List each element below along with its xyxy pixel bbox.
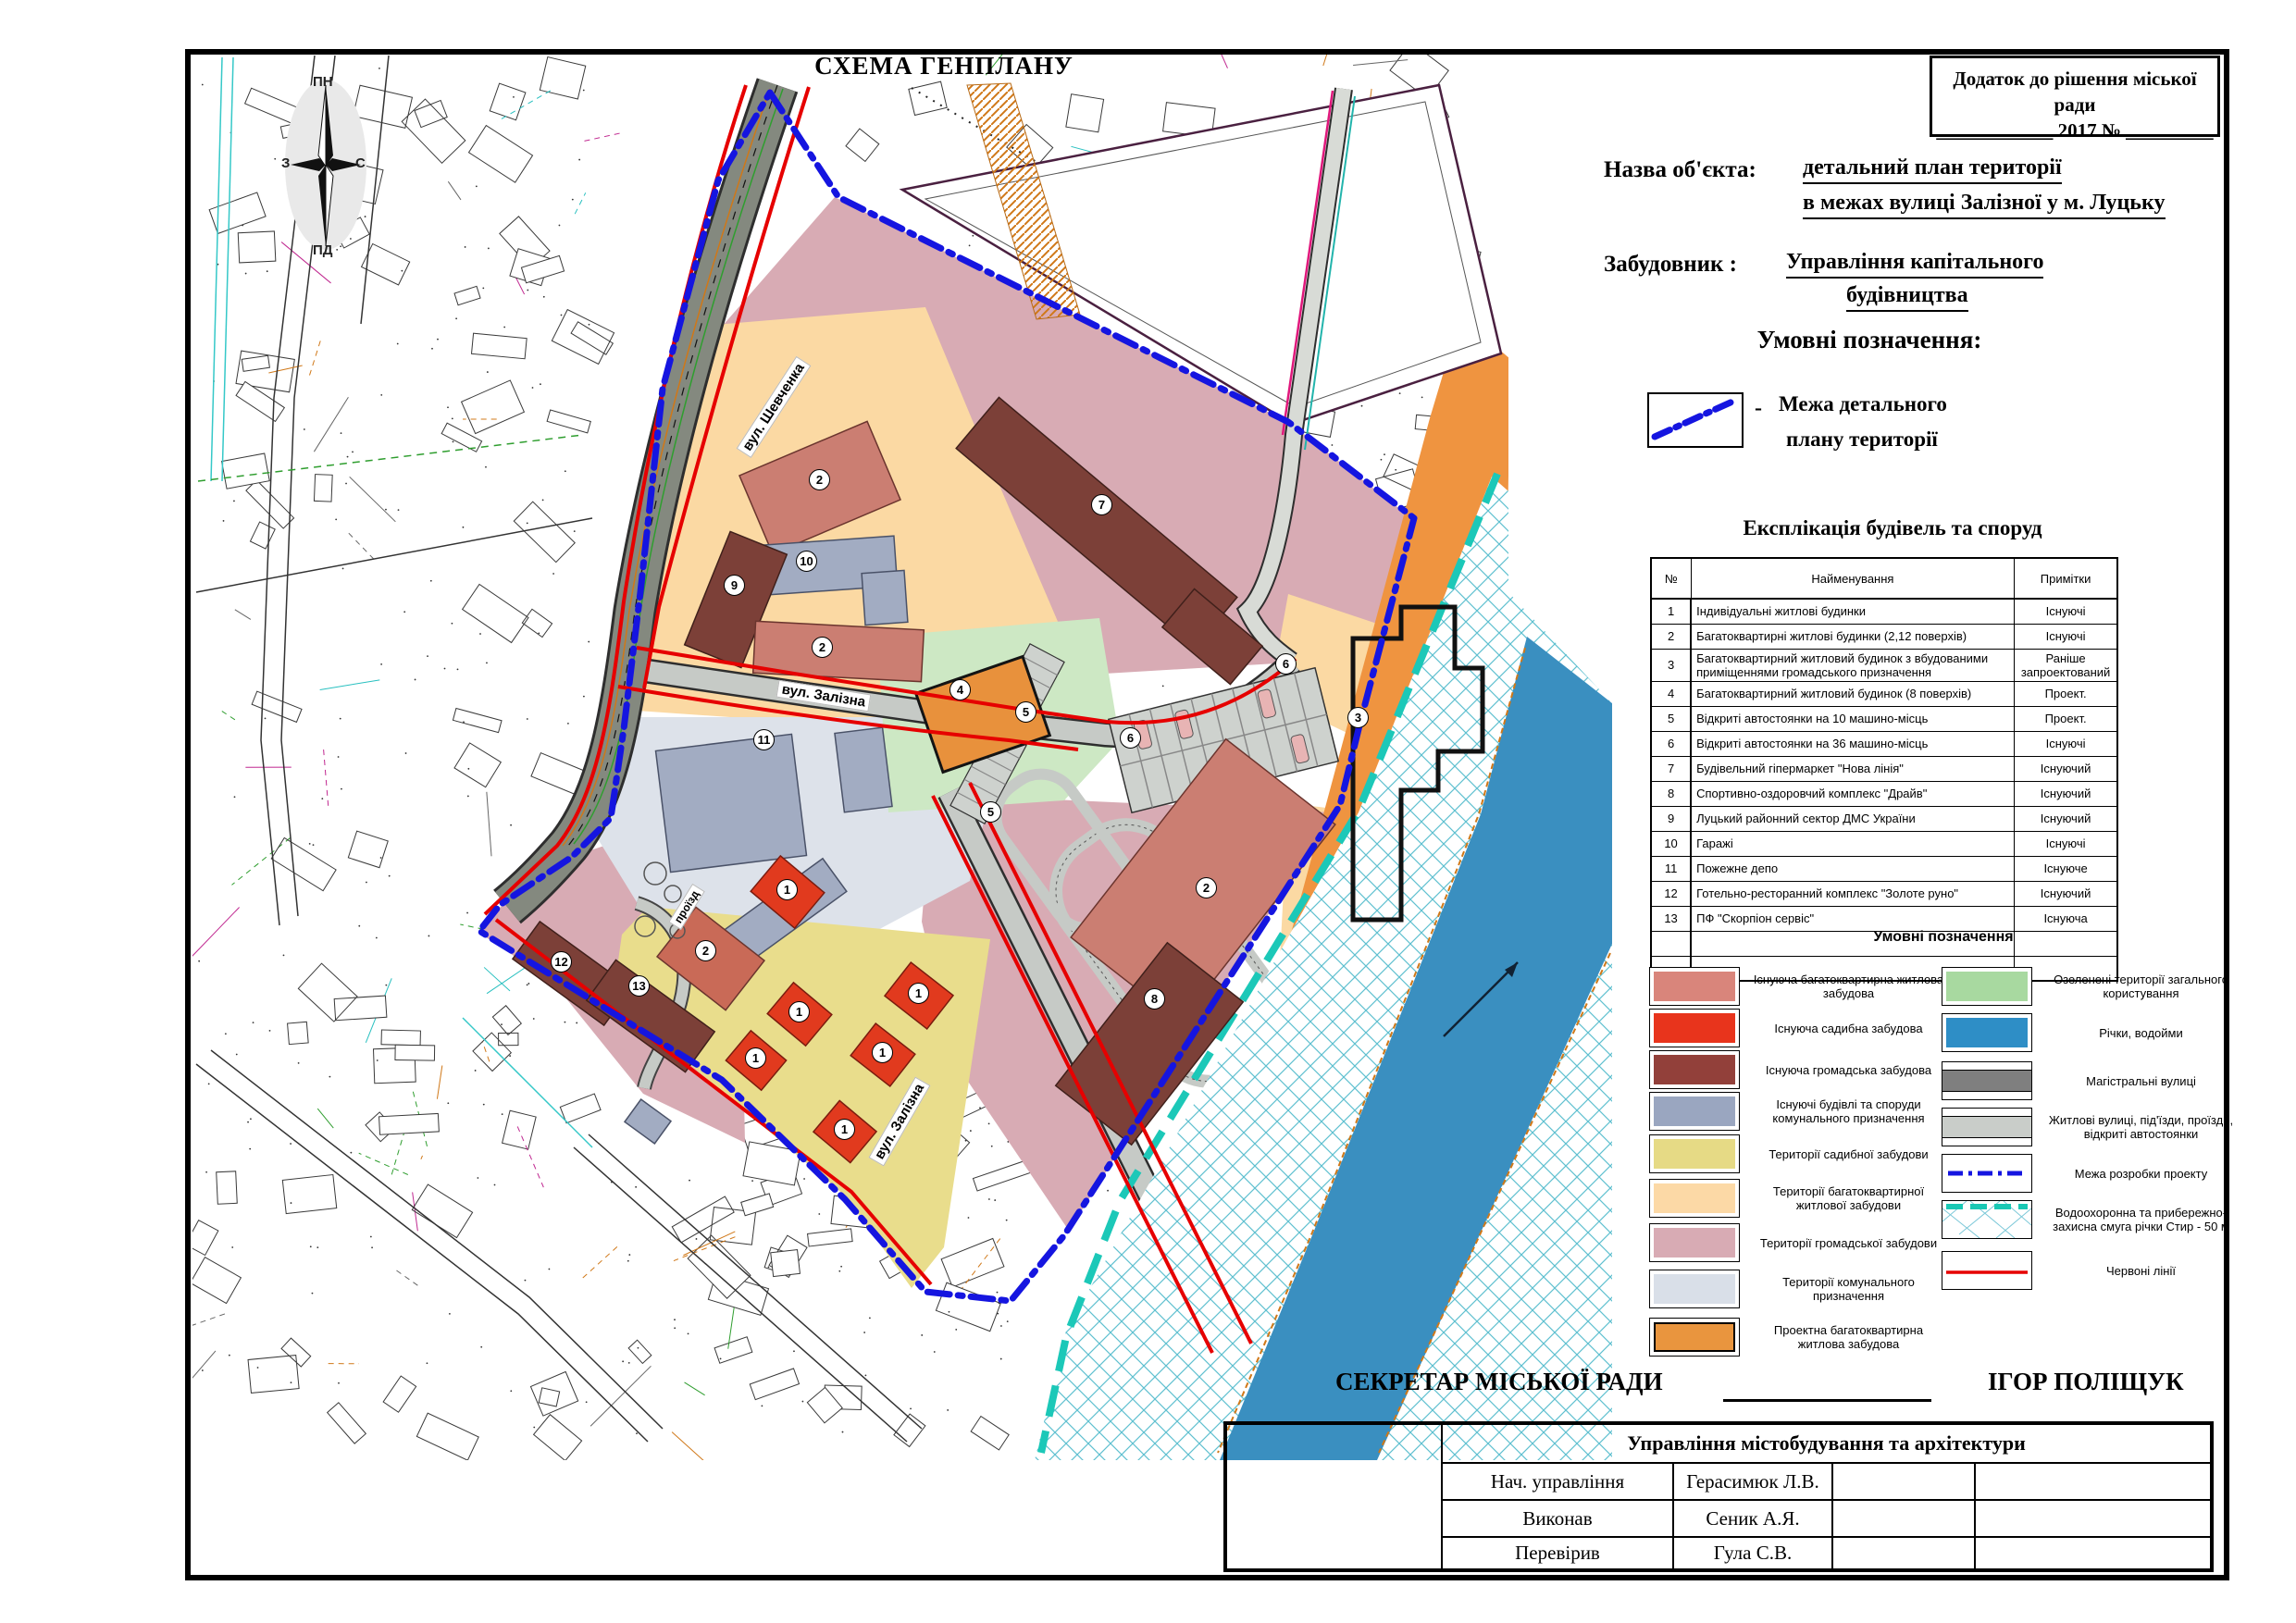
approval-signature-cell [1832, 1500, 1975, 1537]
map-marker-1: 1 [834, 1119, 855, 1140]
legend-swatch [1942, 1013, 2032, 1052]
map-marker-6: 6 [1275, 653, 1297, 675]
row-note: Існуючі [2015, 731, 2117, 756]
legend-item: Водоохоронна та прибережно-захисна смуга… [1942, 1200, 2240, 1239]
row-num: 1 [1651, 599, 1691, 624]
legend-item: Існуюча багатоквартирна житлова забудова [1649, 967, 1948, 1006]
legend-swatch [1942, 1251, 2032, 1290]
legend-item: Житлові вулиці, під'їзди, проїзди, відкр… [1942, 1108, 2240, 1146]
map-marker-5: 5 [1015, 701, 1036, 723]
compass-north-label: ПН [313, 74, 333, 90]
developer-line1: Управління капітального [1786, 250, 2043, 279]
explication-row: 5 Відкриті автостоянки на 10 машино-місц… [1651, 706, 2117, 731]
approval-role: Виконав [1442, 1500, 1673, 1537]
map-marker-2: 2 [695, 940, 716, 961]
legend-swatch [1649, 1179, 1740, 1218]
row-num: 2 [1651, 624, 1691, 649]
explication-row: 12 Готельно-ресторанний комплекс "Золоте… [1651, 881, 2117, 906]
legend-item: Річки, водойми [1942, 1013, 2240, 1052]
row-name: Спортивно-оздоровчий комплекс "Драйв" [1691, 781, 2015, 806]
legend-swatch [1649, 967, 1740, 1006]
legend-swatch [1649, 1318, 1740, 1357]
signature-blank [1723, 1368, 1931, 1402]
explication-row: 10 Гаражі Існуючі [1651, 831, 2117, 856]
compass-east-label: С [355, 155, 366, 171]
object-name-line2: в межах вулиці Залізної у м. Луцьку [1803, 191, 2166, 219]
row-note: Існуючий [2015, 881, 2117, 906]
row-name: Багатоквартирний житловий будинок з вбуд… [1691, 649, 2015, 681]
map-marker-7: 7 [1091, 494, 1112, 515]
map-marker-10: 10 [796, 551, 817, 572]
explication-row: 2 Багатоквартирні житлові будинки (2,12 … [1651, 624, 2117, 649]
legend-swatch [1649, 1270, 1740, 1308]
legend-item: Межа розробки проекту [1942, 1154, 2240, 1193]
explication-row: 7 Будівельний гіпермаркет "Нова лінія" І… [1651, 756, 2117, 781]
legend-swatch [1942, 1200, 2032, 1239]
row-num: 13 [1651, 906, 1691, 931]
legend-swatch [1649, 1134, 1740, 1173]
row-name: Багатоквартирний житловий будинок (8 пов… [1691, 681, 2015, 706]
legend-label: Червоні лінії [2042, 1264, 2240, 1278]
col-note-header: Примітки [2015, 558, 2117, 599]
row-name: Відкриті автостоянки на 36 машино-місць [1691, 731, 2015, 756]
legend-swatch [1649, 1092, 1740, 1131]
explication-title: Експлікація будівель та споруд [1694, 516, 2091, 540]
legend-item: Існуюча садибна забудова [1649, 1009, 1948, 1047]
map-marker-1: 1 [872, 1042, 893, 1063]
map-marker-3: 3 [1347, 707, 1369, 728]
map-marker-1: 1 [776, 879, 798, 900]
legend-swatch [1649, 1050, 1740, 1089]
legend-swatch [1942, 1108, 2032, 1146]
legend-item: Території комунального призначення [1649, 1270, 1948, 1308]
approval-signature-cell [1832, 1537, 1975, 1569]
legend-swatch [1942, 967, 2032, 1006]
row-name: Луцький районний сектор ДМС України [1691, 806, 2015, 831]
explication-row: 1 Індивідуальні житлові будинки Існуючі [1651, 599, 2117, 624]
map-marker-13: 13 [628, 975, 650, 997]
legend-label: Існуючі будівлі та споруди комунального … [1749, 1097, 1948, 1125]
row-note: Існуючі [2015, 624, 2117, 649]
annex-note-box: Додаток до рішення міської ради ________… [1930, 56, 2220, 137]
legend-label: Існуюча багатоквартирна житлова забудова [1749, 973, 1948, 1000]
legend-swatch [1649, 1223, 1740, 1262]
map-marker-6: 6 [1120, 727, 1141, 749]
row-num: 4 [1651, 681, 1691, 706]
legend-item: Озеленені території загального користува… [1942, 967, 2240, 1006]
legend-label: Існуюча громадська забудова [1749, 1063, 1948, 1077]
approval-name: Гула С.В. [1673, 1537, 1832, 1569]
explication-header-row: № Найменування Примітки [1651, 558, 2117, 599]
legend-item: Території садибної забудови [1649, 1134, 1948, 1173]
approval-stamp-cell [1226, 1424, 1442, 1569]
legend-swatch [1649, 1009, 1740, 1047]
map-marker-9: 9 [724, 575, 745, 596]
explication-row: 4 Багатоквартирний житловий будинок (8 п… [1651, 681, 2117, 706]
row-name: ПФ "Скорпіон сервіс" [1691, 906, 2015, 931]
row-note: Існуючий [2015, 806, 2117, 831]
approval-department: Управління містобудування та архітектури [1442, 1424, 2211, 1463]
developer-label: Забудовник : [1604, 252, 1737, 278]
approval-signature-cell [1832, 1463, 1975, 1500]
legend-label: Території громадської забудови [1749, 1236, 1948, 1250]
explication-row: 11 Пожежне депо Існуюче [1651, 856, 2117, 881]
row-num: 3 [1651, 649, 1691, 681]
col-num-header: № [1651, 558, 1691, 599]
approval-role: Нач. управління [1442, 1463, 1673, 1500]
approval-date-cell [1975, 1537, 2211, 1569]
row-name: Будівельний гіпермаркет "Нова лінія" [1691, 756, 2015, 781]
map-marker-2: 2 [809, 469, 830, 490]
explication-row: 6 Відкриті автостоянки на 36 машино-місц… [1651, 731, 2117, 756]
legend-label: Магістральні вулиці [2042, 1074, 2240, 1088]
legend-item: Території багатоквартирної житлової забу… [1649, 1179, 1948, 1218]
map-marker-2: 2 [1196, 877, 1217, 898]
row-name: Гаражі [1691, 831, 2015, 856]
row-name: Індивідуальні житлові будинки [1691, 599, 2015, 624]
row-note: Існуюча [2015, 906, 2117, 931]
row-num: 12 [1651, 881, 1691, 906]
approval-date-cell [1975, 1500, 2211, 1537]
secretary-label: СЕКРЕТАР МІСЬКОЇ РАДИ [1335, 1368, 1663, 1396]
legend-item: Проектна багатоквартирна житлова забудов… [1649, 1318, 1948, 1357]
object-name-line1: детальний план території [1803, 155, 2062, 184]
row-name: Готельно-ресторанний комплекс "Золоте ру… [1691, 881, 2015, 906]
row-note: Раніше запроектований [2015, 649, 2117, 681]
row-num: 8 [1651, 781, 1691, 806]
map-marker-1: 1 [908, 983, 929, 1004]
approval-table: Управління містобудування та архітектури… [1223, 1421, 2214, 1572]
map-legend-title: Умовні позначення [1795, 929, 2091, 946]
explication-row: 9 Луцький районний сектор ДМС України Іс… [1651, 806, 2117, 831]
row-name: Багатоквартирні житлові будинки (2,12 по… [1691, 624, 2015, 649]
approval-date-cell [1975, 1463, 2211, 1500]
legend-label: Межа розробки проекту [2042, 1167, 2240, 1181]
secretary-name: ІГОР ПОЛІЩУК [1988, 1368, 2184, 1396]
explication-table: № Найменування Примітки 1 Індивідуальні … [1650, 557, 2118, 982]
row-note: Існуючі [2015, 599, 2117, 624]
legend-label: Території садибної забудови [1749, 1147, 1948, 1161]
legend-label: Озеленені території загального користува… [2042, 973, 2240, 1000]
map-marker-12: 12 [551, 951, 572, 973]
legend-label: Існуюча садибна забудова [1749, 1022, 1948, 1035]
developer-line2: будівництва [1846, 283, 1968, 312]
row-note: Проект. [2015, 706, 2117, 731]
legend-item: Магістральні вулиці [1942, 1061, 2240, 1100]
explication-row: 13 ПФ "Скорпіон сервіс" Існуюча [1651, 906, 2117, 931]
row-note: Існуючий [2015, 781, 2117, 806]
object-name-label: Назва об'єкта: [1604, 157, 1756, 183]
legend-item: Існуюча громадська забудова [1649, 1050, 1948, 1089]
legend-swatch [1942, 1061, 2032, 1100]
boundary-symbol-box [1647, 392, 1744, 448]
compass-south-label: ПД [313, 242, 332, 258]
row-name: Пожежне депо [1691, 856, 2015, 881]
approval-role: Перевірив [1442, 1537, 1673, 1569]
approval-name: Сеник А.Я. [1673, 1500, 1832, 1537]
explication-row: 8 Спортивно-оздоровчий комплекс "Драйв" … [1651, 781, 2117, 806]
col-name-header: Найменування [1691, 558, 2015, 599]
map-marker-4: 4 [949, 679, 971, 700]
legend-label: Водоохоронна та прибережно-захисна смуга… [2042, 1206, 2240, 1233]
legend-dash: - [1755, 396, 1762, 421]
row-num: 5 [1651, 706, 1691, 731]
row-num: 9 [1651, 806, 1691, 831]
map-marker-2: 2 [812, 637, 833, 658]
row-note: Існуюче [2015, 856, 2117, 881]
legend-item: Території громадської забудови [1649, 1223, 1948, 1262]
legend-label: Території комунального призначення [1749, 1275, 1948, 1303]
map-marker-11: 11 [753, 729, 775, 750]
compass-west-label: З [281, 155, 290, 171]
plan-sheet: СХЕМА ГЕНПЛАНУ ПН ПД З С вул. Шевченкаву… [0, 0, 2296, 1623]
boundary-label-line1: Межа детального [1779, 392, 1947, 416]
row-num: 6 [1651, 731, 1691, 756]
legend-label: Річки, водойми [2042, 1026, 2240, 1040]
row-num: 10 [1651, 831, 1691, 856]
approval-name: Герасимюк Л.В. [1673, 1463, 1832, 1500]
map-marker-8: 8 [1144, 988, 1165, 1010]
row-num: 11 [1651, 856, 1691, 881]
legend-label: Території багатоквартирної житлової забу… [1749, 1184, 1948, 1212]
row-note: Проект. [2015, 681, 2117, 706]
legend-swatch [1942, 1154, 2032, 1193]
explication-row: 3 Багатоквартирний житловий будинок з вб… [1651, 649, 2117, 681]
legend-label: Проектна багатоквартирна житлова забудов… [1749, 1323, 1948, 1351]
annex-line2: ____________ 2017 № _________ [1932, 118, 2217, 143]
row-note: Існуючий [2015, 756, 2117, 781]
row-name: Відкриті автостоянки на 10 машино-місць [1691, 706, 2015, 731]
map-marker-1: 1 [788, 1001, 810, 1022]
legend-title: Умовні позначення: [1707, 326, 2031, 354]
row-num: 7 [1651, 756, 1691, 781]
legend-item: Існуючі будівлі та споруди комунального … [1649, 1092, 1948, 1131]
legend-label: Житлові вулиці, під'їзди, проїзди, відкр… [2042, 1113, 2240, 1141]
map-marker-5: 5 [980, 801, 1001, 823]
map-title: СХЕМА ГЕНПЛАНУ [814, 52, 1074, 81]
boundary-label-line2: плану території [1786, 427, 1938, 452]
annex-line1: Додаток до рішення міської ради [1932, 66, 2217, 118]
legend-item: Червоні лінії [1942, 1251, 2240, 1290]
row-note: Існуючі [2015, 831, 2117, 856]
map-marker-1: 1 [745, 1047, 766, 1069]
